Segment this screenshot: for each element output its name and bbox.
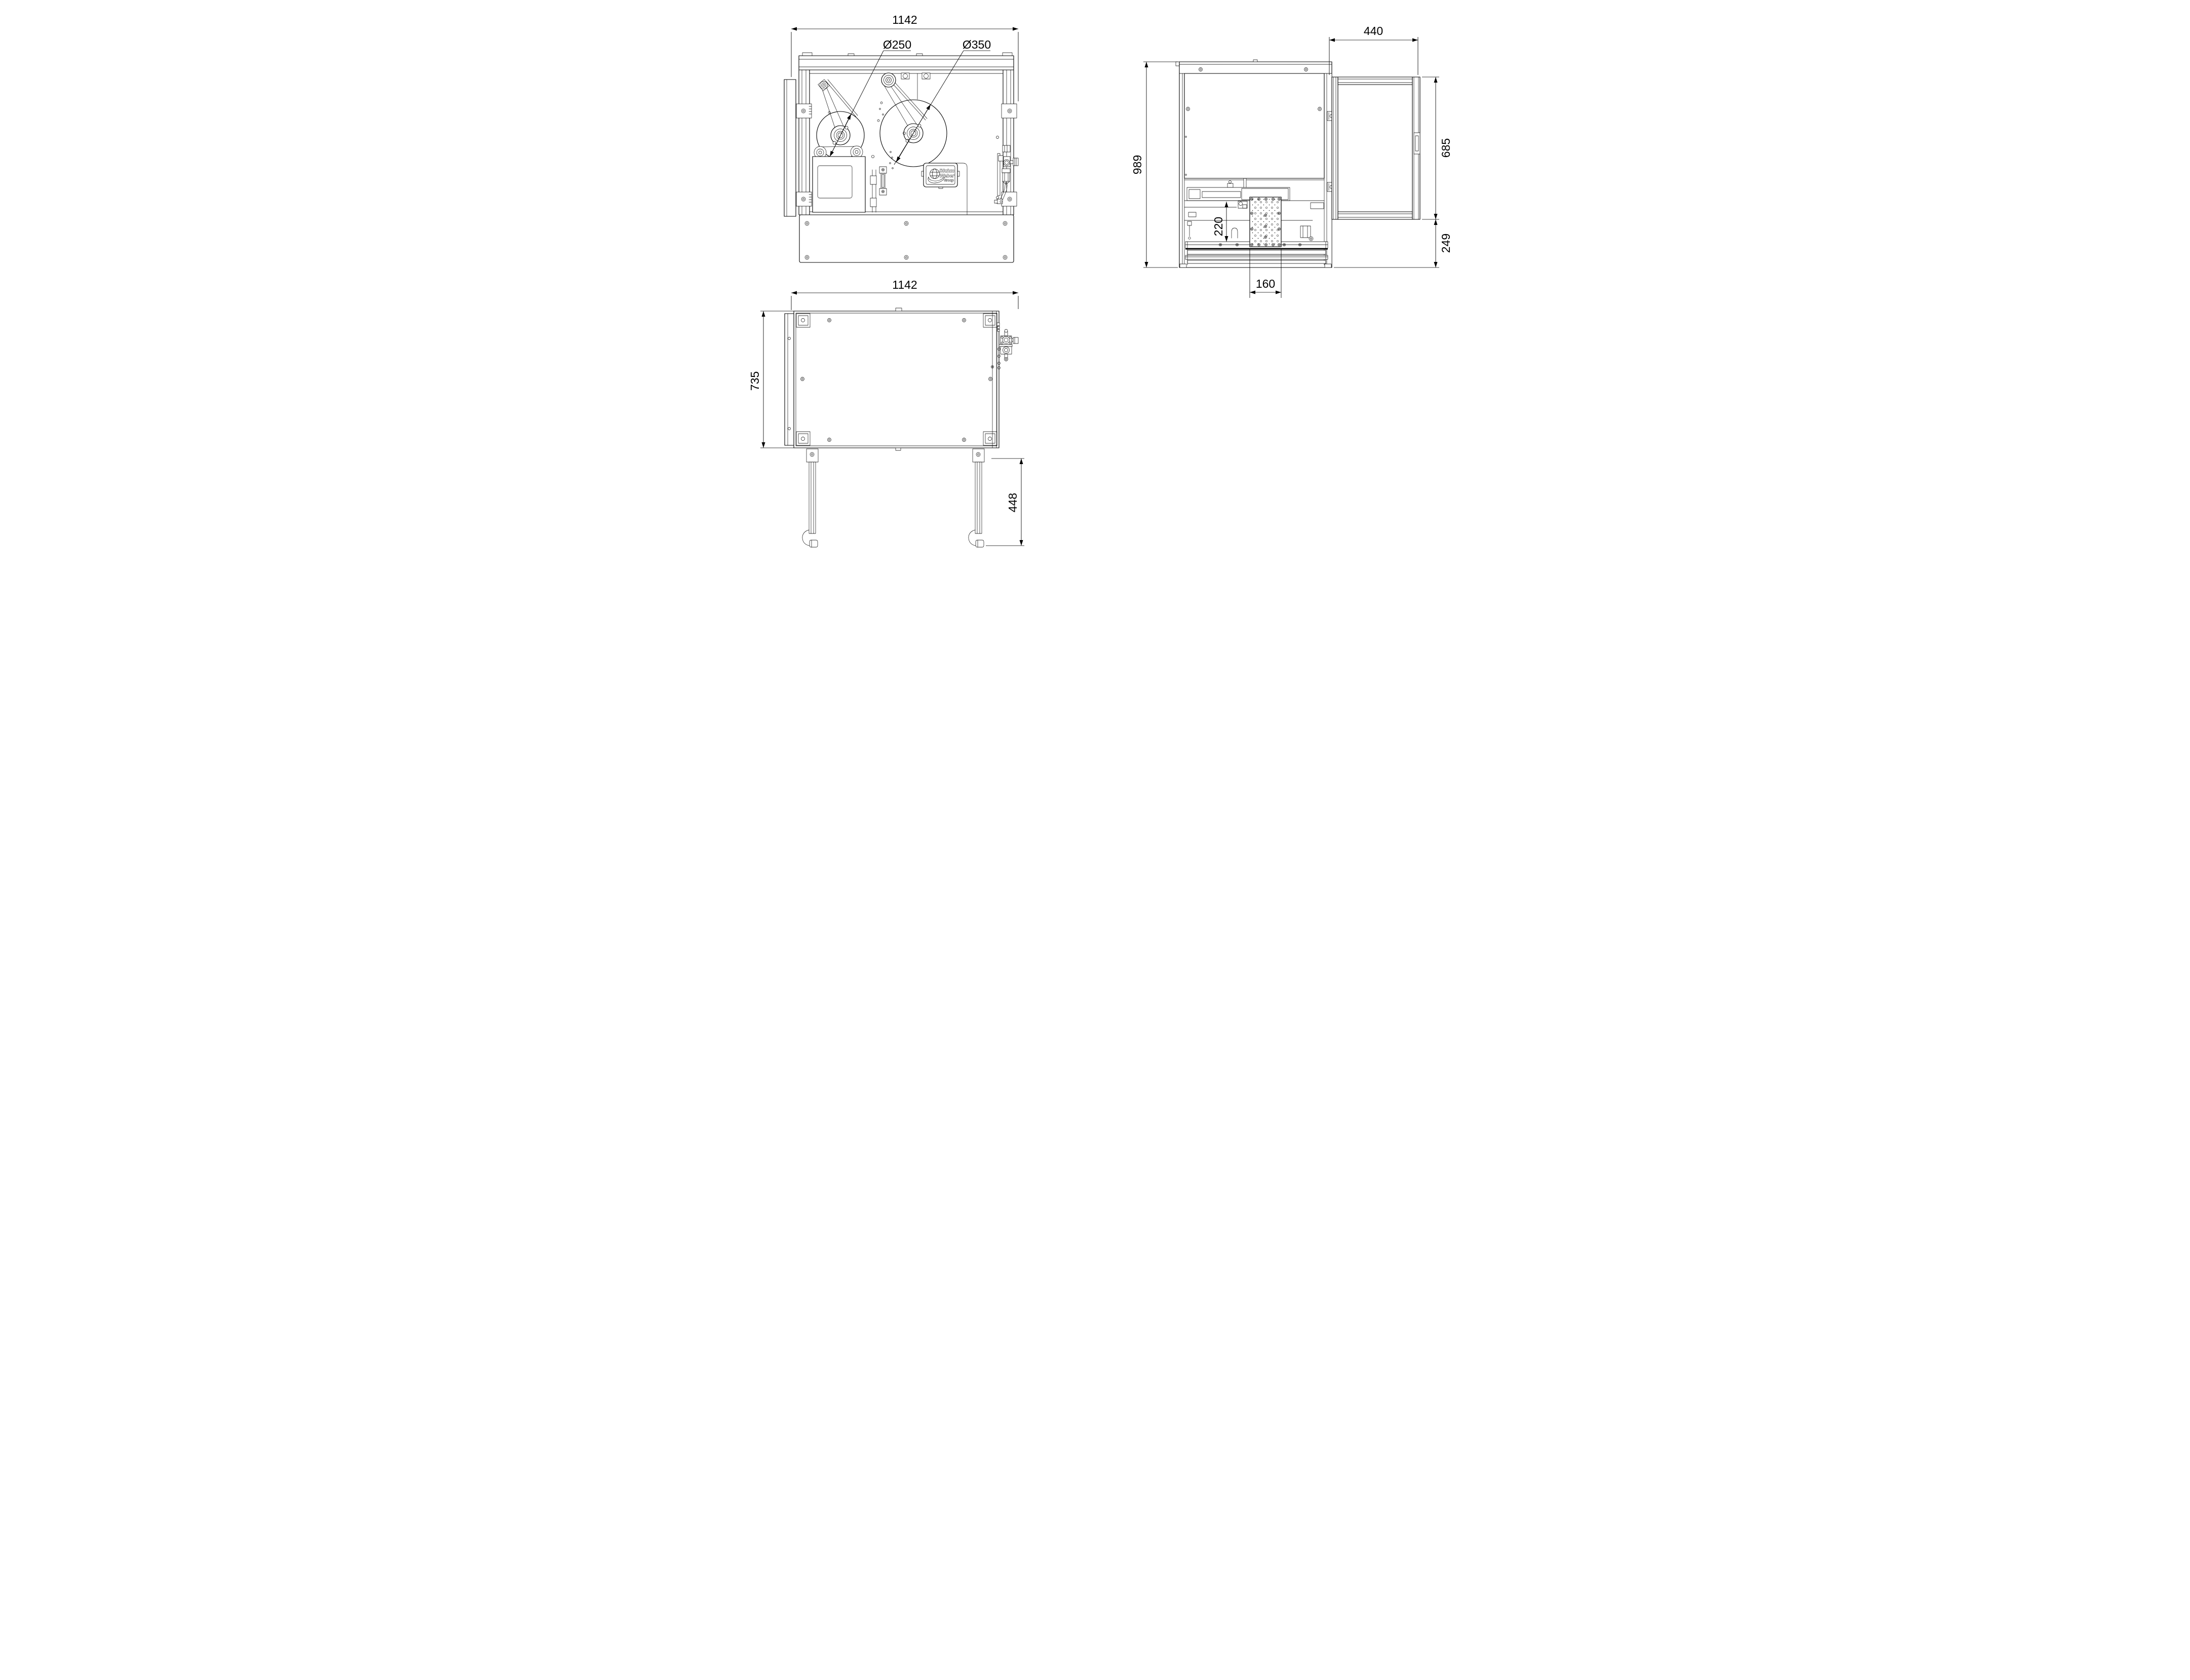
dim-door-width: 440 <box>1329 24 1418 75</box>
dim-leg-length: 448 <box>986 459 1024 546</box>
front-view: Bluhm Weber Group <box>784 53 1018 262</box>
dim-door-height-label: 685 <box>1439 138 1452 158</box>
dim-door-width-label: 440 <box>1364 24 1383 37</box>
idler-pulley <box>818 80 830 91</box>
foot <box>1180 264 1186 268</box>
dim-door-height: 685 <box>1422 77 1452 219</box>
frame-cap <box>802 53 812 56</box>
drawing-canvas: Bluhm Weber Group <box>730 0 1460 560</box>
frame-cap <box>1176 62 1179 66</box>
dim-lower-height-label: 249 <box>1439 234 1452 253</box>
top-pulley <box>881 73 896 87</box>
perforated-plate <box>1250 197 1281 247</box>
dim-clearance-label: 220 <box>1212 217 1225 236</box>
frame-cap <box>1003 53 1012 56</box>
dim-roll-large-label: Ø350 <box>963 38 991 51</box>
dim-top-width-label: 1142 <box>892 278 917 291</box>
dim-roll-small-label: Ø250 <box>883 38 911 51</box>
top-view <box>785 308 1018 547</box>
open-door <box>1332 77 1420 219</box>
top-tab <box>896 308 902 311</box>
dim-top-width: 1142 <box>791 278 1018 310</box>
dim-lower-height: 249 <box>1334 219 1452 268</box>
handle-slot <box>879 167 887 195</box>
top-tab <box>1253 60 1257 62</box>
technical-drawing: Bluhm Weber Group <box>730 0 1460 560</box>
dim-leg-length-label: 448 <box>1006 493 1019 512</box>
top-slots <box>901 73 930 79</box>
logo-plate: Bluhm Weber Group <box>921 163 959 188</box>
top-rail <box>799 56 1014 70</box>
left-side-panel-top <box>785 314 794 445</box>
foot <box>1325 264 1331 268</box>
leg-left <box>802 449 818 547</box>
bottom-tab <box>896 448 901 450</box>
printer-unit <box>813 157 876 212</box>
dim-overall-height-label: 989 <box>1131 155 1144 174</box>
machine-body-top <box>794 311 999 448</box>
logo-line3: Group <box>944 179 954 182</box>
dim-overall-height: 989 <box>1131 62 1178 268</box>
leg-right <box>969 449 984 547</box>
right-profile <box>1324 73 1332 265</box>
dimensions: 1142 Ø250 Ø350 440 <box>748 13 1452 546</box>
dim-front-width-label: 1142 <box>892 13 917 26</box>
dim-depth-label: 735 <box>748 371 761 391</box>
logo-line2: Weber <box>940 173 955 179</box>
base-panel <box>799 215 1014 262</box>
side-panel <box>1184 73 1324 178</box>
left-side-panel <box>784 80 796 216</box>
dim-pad-width-label: 160 <box>1256 277 1275 290</box>
